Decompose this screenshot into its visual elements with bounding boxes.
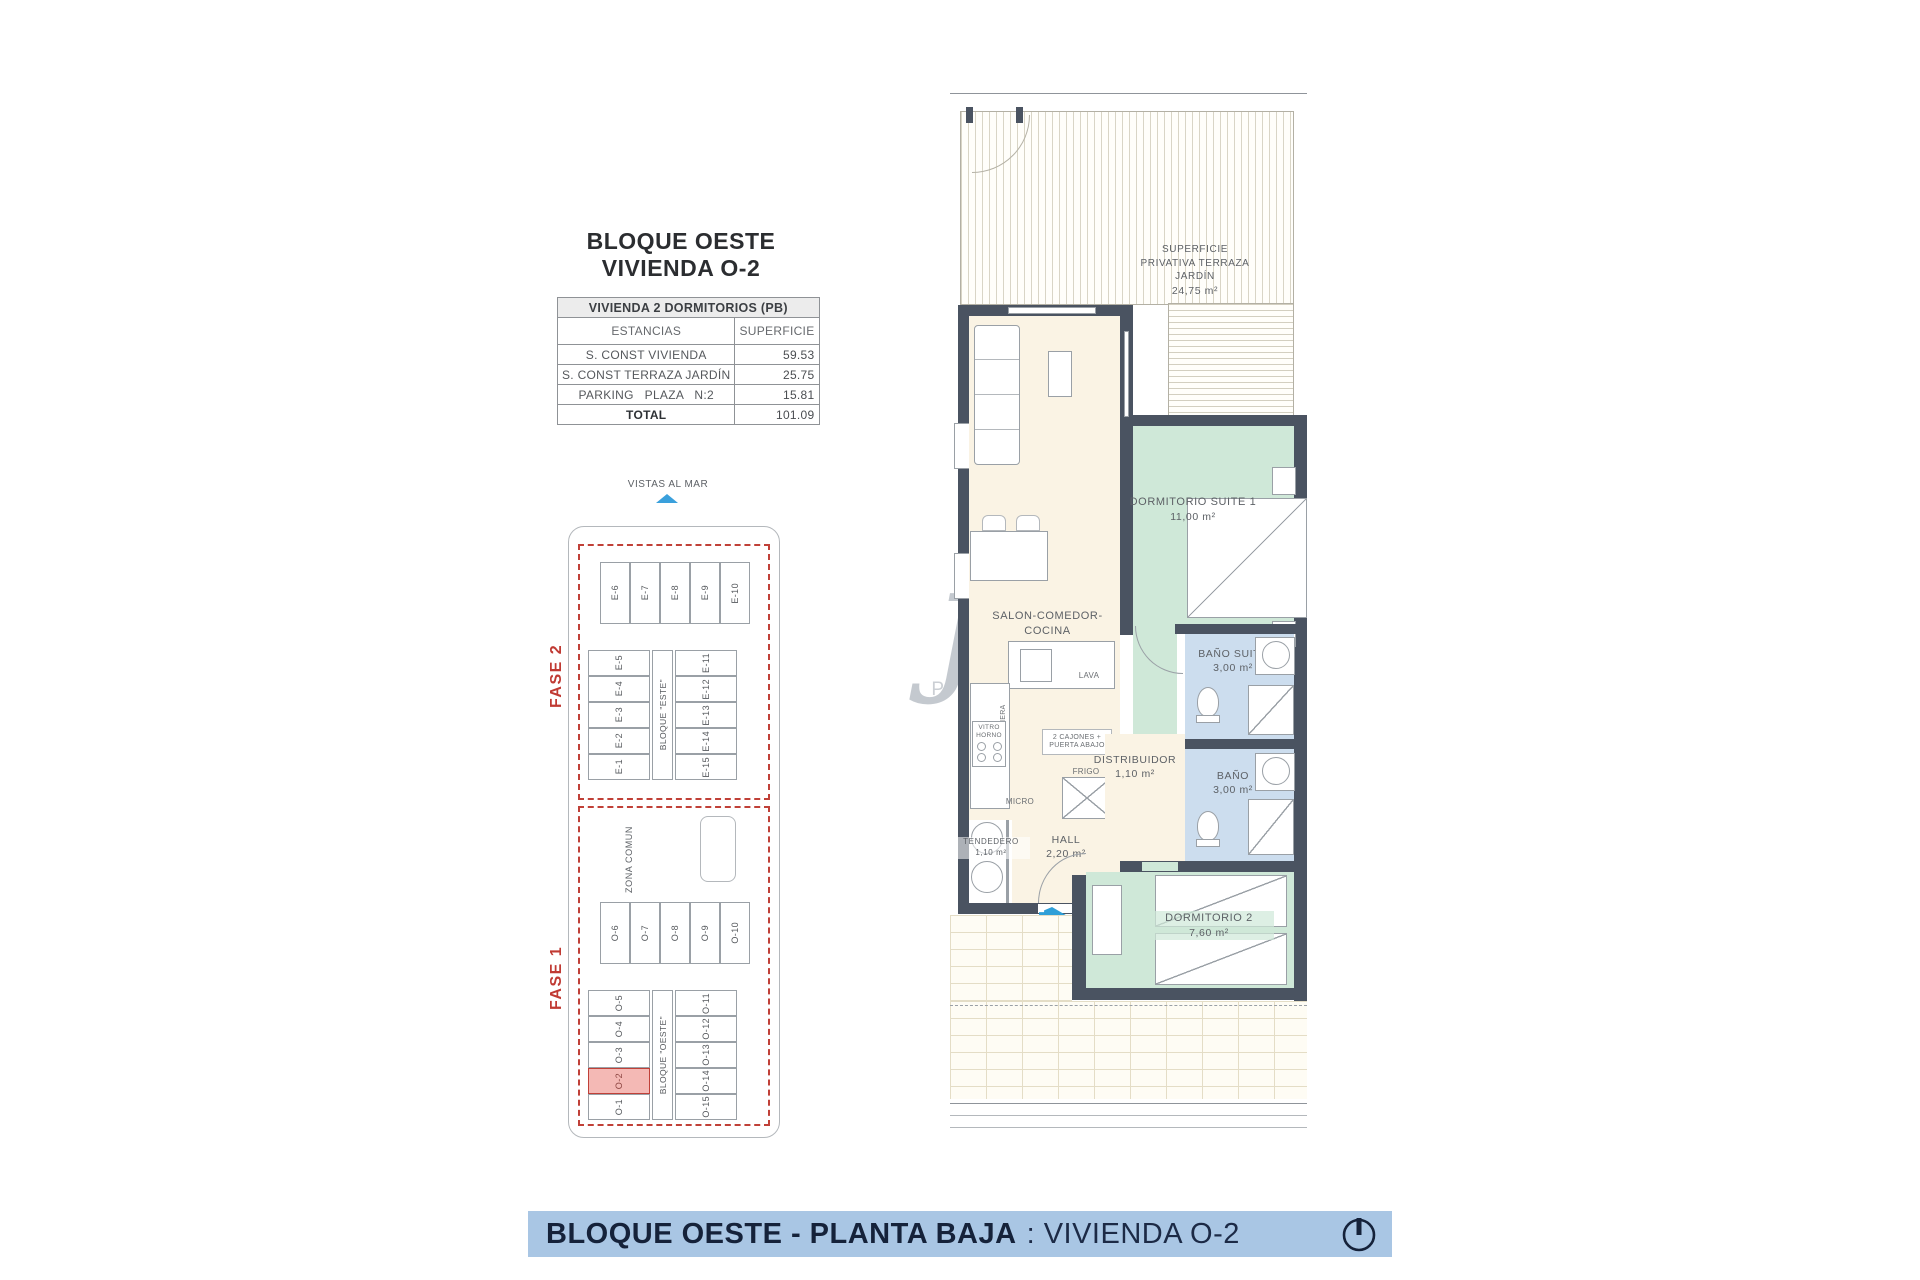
unit-label: E-15 xyxy=(701,757,711,778)
cajones-line: 2 CAJONES + xyxy=(1043,734,1111,742)
site-unit-cell: O-8 xyxy=(660,902,690,964)
cajones-note: 2 CAJONES + PUERTA ABAJO xyxy=(1042,729,1112,755)
terrace-label: SUPERFICIE PRIVATIVA TERRAZA JARDÍN 24,7… xyxy=(1110,243,1280,298)
hall-name: HALL xyxy=(1022,833,1110,847)
site-unit-cell: E-3 xyxy=(588,702,650,728)
dorm2-bed xyxy=(1155,933,1287,985)
total-value: 101.09 xyxy=(735,405,819,425)
site-unit-cell: E-4 xyxy=(588,676,650,702)
unit-label: E-4 xyxy=(614,681,624,696)
tendedero-area-value: 1,10 m² xyxy=(952,848,1030,859)
shower-tray xyxy=(1248,799,1294,855)
unit-label: E-14 xyxy=(701,731,711,752)
site-unit-cell: E-11 xyxy=(675,650,737,676)
unit-label: E-12 xyxy=(701,679,711,700)
walkway-paving xyxy=(950,915,1072,1001)
sink-icon xyxy=(1262,757,1290,785)
unit-label: O-14 xyxy=(701,1070,711,1092)
site-unit-cell: E-10 xyxy=(720,562,750,624)
site-unit-cell: O-11 xyxy=(675,990,737,1016)
site-unit-cell: O-13 xyxy=(675,1042,737,1068)
row-value: 15.81 xyxy=(735,385,819,405)
fase-2-label: FASE 2 xyxy=(548,628,566,708)
este-left-column: E-5 E-4 E-3 E-2 E-1 xyxy=(588,650,650,780)
unit-label: O-15 xyxy=(701,1096,711,1118)
oeste-right-column: O-11 O-12 O-13 O-14 O-15 xyxy=(675,990,737,1120)
table-row: S. CONST TERRAZA JARDÍN 25.75 xyxy=(558,365,820,385)
site-unit-cell: E-2 xyxy=(588,728,650,754)
side-table xyxy=(1048,351,1072,397)
unit-label: E-8 xyxy=(670,585,680,600)
wall-tendedero-hall xyxy=(1006,820,1009,903)
site-unit-cell: E-1 xyxy=(588,754,650,780)
unit-label: O-11 xyxy=(701,993,711,1014)
suite-area-value: 11,00 m² xyxy=(1118,510,1268,524)
wall-bath-divider xyxy=(1175,739,1307,749)
sidewalk-line xyxy=(950,1127,1307,1128)
distribuidor-label: DISTRIBUIDOR 1,10 m² xyxy=(1080,753,1190,781)
suite-label: DORMITORIO SUITE 1 11,00 m² xyxy=(1118,495,1268,524)
site-unit-cell: E-7 xyxy=(630,562,660,624)
site-unit-cell: E-15 xyxy=(675,754,737,780)
salon-name: SALON-COMEDOR-COCINA xyxy=(975,609,1120,639)
dining-chair xyxy=(1016,515,1040,531)
unit-label: O-8 xyxy=(670,925,680,941)
bloque-este-label: BLOQUE "ESTE" xyxy=(658,679,668,750)
title-line-1: BLOQUE OESTE xyxy=(535,228,827,255)
toilet-icon xyxy=(1197,811,1219,841)
terrace-label-line: PRIVATIVA TERRAZA xyxy=(1110,257,1280,271)
footer-regular-text: : VIVIENDA O-2 xyxy=(1027,1218,1240,1251)
plot-boundary-line xyxy=(950,93,1307,94)
bloque-oeste-corridor: BLOQUE "OESTE" xyxy=(652,990,673,1120)
wall-suite-bath xyxy=(1175,624,1307,634)
micro-label: MICRO xyxy=(998,797,1042,807)
pergola-area xyxy=(1168,303,1294,429)
unit-label: E-13 xyxy=(701,705,711,726)
site-unit-cell: E-8 xyxy=(660,562,690,624)
table-row: PARKING PLAZA N:2 15.81 xyxy=(558,385,820,405)
site-unit-cell: O-1 xyxy=(588,1094,650,1120)
terrace-label-line: SUPERFICIE xyxy=(1110,243,1280,257)
sidewalk-line xyxy=(950,1115,1307,1116)
window-living-top xyxy=(1008,307,1096,314)
distribuidor-area-value: 1,10 m² xyxy=(1080,767,1190,781)
wall-left-exterior xyxy=(958,305,969,903)
kitchen-sink xyxy=(1020,649,1052,682)
site-unit-cell: O-10 xyxy=(720,902,750,964)
site-unit-cell-highlighted: O-2 xyxy=(588,1068,650,1094)
unit-label: E-1 xyxy=(614,759,624,774)
unit-label: O-2 xyxy=(614,1073,624,1089)
unit-label: E-2 xyxy=(614,733,624,748)
dorm2-door-gap xyxy=(1142,862,1178,871)
shower-tray xyxy=(1248,685,1294,735)
suite-name: DORMITORIO SUITE 1 xyxy=(1118,495,1268,510)
window-tall-slot xyxy=(1124,331,1129,417)
este-top-row: E-6 E-7 E-8 E-9 E-10 xyxy=(600,562,750,624)
total-label: TOTAL xyxy=(558,405,735,425)
gate-post xyxy=(1016,107,1023,123)
dining-table xyxy=(970,531,1048,581)
unit-label: O-1 xyxy=(614,1099,624,1115)
table-title: VIVIENDA 2 DORMITORIOS (PB) xyxy=(558,298,820,318)
site-unit-cell: O-15 xyxy=(675,1094,737,1120)
unit-label: E-3 xyxy=(614,707,624,722)
tendedero-label: TENDEDERO 1,10 m² xyxy=(952,837,1030,859)
north-arrow-icon xyxy=(1340,1215,1378,1253)
unit-label: O-10 xyxy=(730,922,740,944)
site-unit-cell: O-7 xyxy=(630,902,660,964)
site-unit-cell: E-9 xyxy=(690,562,720,624)
gate-post xyxy=(966,107,973,123)
distribuidor-name: DISTRIBUIDOR xyxy=(1080,753,1190,767)
site-unit-cell: E-6 xyxy=(600,562,630,624)
horno-label: HORNO xyxy=(973,732,1005,740)
site-unit-cell: O-9 xyxy=(690,902,720,964)
dorm2-area-value: 7,60 m² xyxy=(1144,926,1274,940)
vitro-label: VITRO xyxy=(973,724,1005,732)
table-total-row: TOTAL 101.09 xyxy=(558,405,820,425)
unit-label: E-11 xyxy=(701,653,711,673)
tendedero-name: TENDEDERO xyxy=(952,837,1030,848)
cajones-line: PUERTA ABAJO xyxy=(1043,742,1111,750)
site-unit-cell: E-14 xyxy=(675,728,737,754)
site-unit-cell: O-3 xyxy=(588,1042,650,1068)
unit-label: E-9 xyxy=(700,585,710,600)
floor-plan: SUPERFICIE PRIVATIVA TERRAZA JARDÍN 24,7… xyxy=(950,85,1335,1155)
footer-bold-text: BLOQUE OESTE - PLANTA BAJA xyxy=(546,1218,1017,1251)
nightstand xyxy=(1272,467,1296,495)
row-label: S. CONST TERRAZA JARDÍN xyxy=(558,365,735,385)
oeste-left-column: O-5 O-4 O-3 O-2 O-1 xyxy=(588,990,650,1120)
washer-icon xyxy=(971,861,1003,893)
sidewalk-line xyxy=(950,1103,1307,1104)
unit-label: O-7 xyxy=(640,925,650,941)
terrace-area-value: 24,75 m² xyxy=(1110,284,1280,298)
front-paving xyxy=(950,1001,1307,1099)
footer-banner: BLOQUE OESTE - PLANTA BAJA : VIVIENDA O-… xyxy=(528,1211,1392,1257)
sea-view-icon xyxy=(656,494,678,503)
site-unit-cell: O-5 xyxy=(588,990,650,1016)
unit-label: E-5 xyxy=(614,655,624,670)
title-line-2: VIVIENDA O-2 xyxy=(535,255,827,282)
col-header-estancias: ESTANCIAS xyxy=(558,318,735,345)
row-label: PARKING PLAZA N:2 xyxy=(558,385,735,405)
sheet-title: BLOQUE OESTE VIVIENDA O-2 xyxy=(535,228,827,282)
unit-label: O-5 xyxy=(614,995,624,1011)
unit-label: O-13 xyxy=(701,1044,711,1066)
sofa xyxy=(974,325,1020,465)
site-unit-cell: O-4 xyxy=(588,1016,650,1042)
toilet-tank xyxy=(1196,715,1220,723)
col-header-superficie: SUPERFICIE xyxy=(735,318,819,345)
dorm2-label: DORMITORIO 2 7,60 m² xyxy=(1144,911,1274,940)
wardrobe xyxy=(1092,885,1122,955)
row-value: 59.53 xyxy=(735,345,819,365)
vistas-al-mar-label: VISTAS AL MAR xyxy=(540,478,796,491)
site-unit-cell: O-6 xyxy=(600,902,630,964)
site-unit-cell: O-14 xyxy=(675,1068,737,1094)
unit-label: O-3 xyxy=(614,1047,624,1063)
toilet-tank xyxy=(1196,839,1220,847)
zona-comun-label: ZONA COMUN xyxy=(624,813,634,893)
boundary-dashed-line xyxy=(950,1005,1307,1006)
row-label: S. CONST VIVIENDA xyxy=(558,345,735,365)
unit-label: E-10 xyxy=(730,583,740,604)
site-unit-cell: E-12 xyxy=(675,676,737,702)
surface-summary-table: VIVIENDA 2 DORMITORIOS (PB) ESTANCIAS SU… xyxy=(557,297,820,425)
table-row: S. CONST VIVIENDA 59.53 xyxy=(558,345,820,365)
dorm2-name: DORMITORIO 2 xyxy=(1144,911,1274,926)
bloque-oeste-label: BLOQUE "OESTE" xyxy=(658,1016,668,1094)
bloque-este-corridor: BLOQUE "ESTE" xyxy=(652,650,673,780)
sink-icon xyxy=(1262,641,1290,669)
site-unit-cell: E-13 xyxy=(675,702,737,728)
wall-dorm2-bottom xyxy=(1072,988,1307,1000)
toilet-icon xyxy=(1197,687,1219,717)
unit-label: E-6 xyxy=(610,585,620,600)
dining-chair xyxy=(982,515,1006,531)
oeste-top-row: O-6 O-7 O-8 O-9 O-10 xyxy=(600,902,750,964)
cooktop-oven: VITRO HORNO xyxy=(972,721,1006,767)
fase-1-label: FASE 1 xyxy=(548,930,566,1010)
unit-label: E-7 xyxy=(640,585,650,600)
site-plan: VISTAS AL MAR FASE 2 FASE 1 E-6 E-7 E-8 … xyxy=(540,478,825,1150)
site-unit-cell: E-5 xyxy=(588,650,650,676)
unit-label: O-12 xyxy=(701,1018,711,1040)
site-unit-cell: O-12 xyxy=(675,1016,737,1042)
parked-car-shape xyxy=(700,816,736,882)
lava-label: LAVA xyxy=(1068,671,1110,681)
unit-label: O-6 xyxy=(610,925,620,941)
terrace-label-line: JARDÍN xyxy=(1110,270,1280,284)
unit-label: O-4 xyxy=(614,1021,624,1037)
unit-label: O-9 xyxy=(700,925,710,941)
este-right-column: E-11 E-12 E-13 E-14 E-15 xyxy=(675,650,737,780)
row-value: 25.75 xyxy=(735,365,819,385)
wall-suite-top xyxy=(1133,415,1307,426)
